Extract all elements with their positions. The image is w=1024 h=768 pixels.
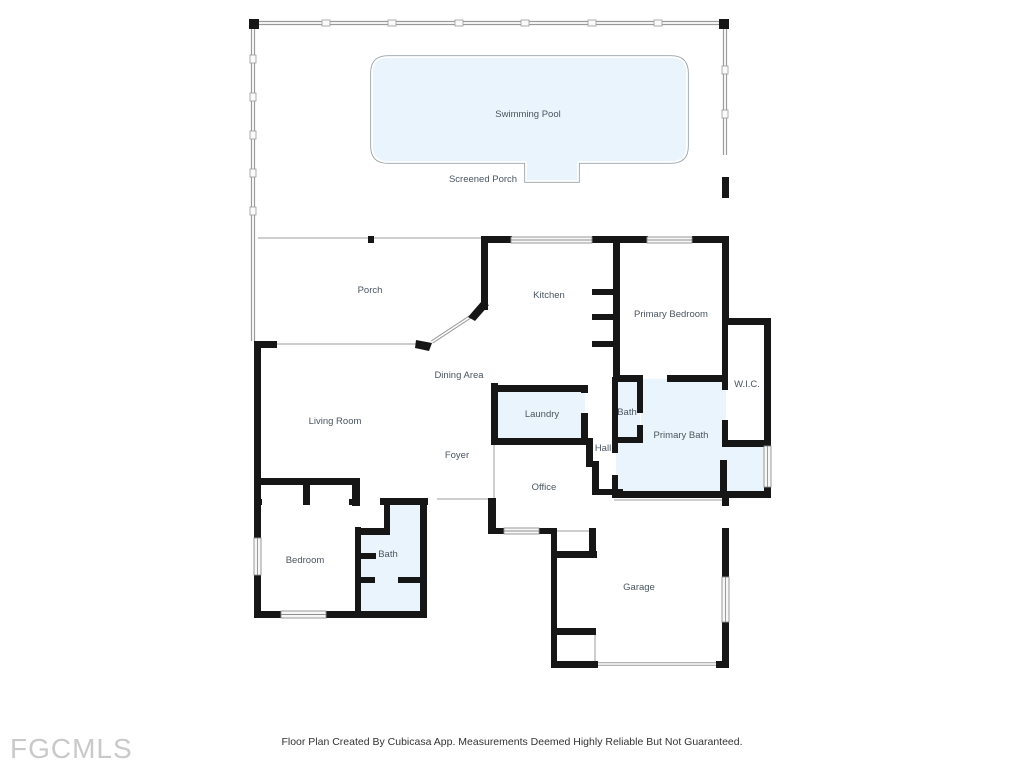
room-label-wic: W.I.C.	[734, 379, 760, 390]
room-label-swimming-pool: Swimming Pool	[495, 109, 560, 120]
room-label-office: Office	[532, 482, 557, 493]
fgcmls-logo: FGCMLS	[10, 733, 133, 764]
garage-window	[722, 577, 729, 622]
room-label-hall: Hall	[595, 443, 611, 454]
room-label-primary-bedroom: Primary Bedroom	[634, 309, 708, 320]
room-label-kitchen: Kitchen	[533, 290, 565, 301]
room-label-primary-bath: Primary Bath	[654, 430, 709, 441]
disclaimer-text: Floor Plan Created By Cubicasa App. Meas…	[281, 736, 742, 748]
primary-bedroom-window	[647, 237, 692, 243]
room-label-garage: Garage	[623, 582, 655, 593]
room-label-porch: Porch	[358, 285, 383, 296]
room-label-bath-primary-small: Bath	[617, 407, 637, 418]
bedroom-left-window	[254, 538, 261, 575]
kitchen-window	[511, 237, 592, 243]
room-label-laundry: Laundry	[525, 409, 560, 420]
room-labels: Swimming Pool Screened Porch Porch Kitch…	[286, 109, 760, 593]
primary-bath-window	[764, 446, 771, 487]
office-window	[504, 528, 539, 534]
bedroom-bottom-window	[281, 611, 326, 618]
floor-plan-svg: Swimming Pool Screened Porch Porch Kitch…	[0, 0, 1024, 768]
room-label-dining-area: Dining Area	[434, 370, 484, 381]
floor-plan-page: Swimming Pool Screened Porch Porch Kitch…	[0, 0, 1024, 768]
room-label-bath-hall: Bath	[378, 549, 398, 560]
room-label-living-room: Living Room	[309, 416, 362, 427]
room-label-screened-porch: Screened Porch	[449, 174, 517, 185]
room-label-bedroom: Bedroom	[286, 555, 325, 566]
room-label-foyer: Foyer	[445, 450, 469, 461]
